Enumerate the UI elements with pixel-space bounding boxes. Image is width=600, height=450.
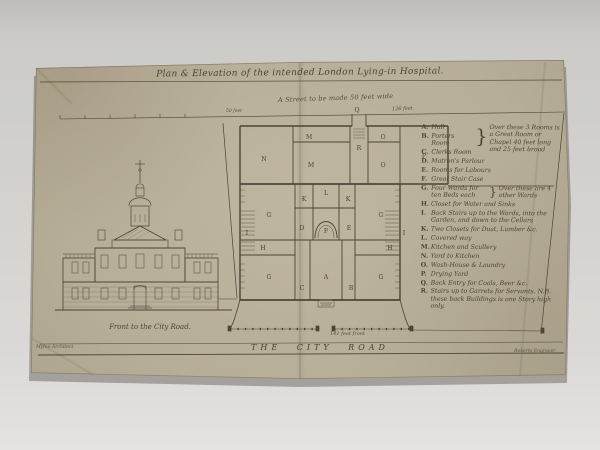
svg-text:I: I [403, 230, 406, 237]
ward-ticks [240, 190, 400, 288]
legend-item: NYard to Kitchen [421, 252, 563, 260]
legend-item: QBack Entry for Coals, Beer &c. [421, 279, 563, 287]
svg-text:M: M [306, 134, 313, 141]
svg-text:D: D [300, 225, 305, 232]
svg-text:K: K [302, 196, 307, 203]
svg-text:O: O [380, 134, 385, 141]
legend-item: AHall [421, 124, 473, 132]
svg-text:E: E [347, 225, 352, 232]
elevation-windows [72, 254, 211, 299]
legend-item: RStairs up to Garrets for Servants. N.B.… [421, 288, 563, 311]
legend-group-g: GFour Wards for ten Beds each } Over the… [421, 184, 563, 199]
legend-brace: } [475, 124, 487, 157]
legend-item: CClerks Room [421, 149, 473, 157]
legend-group-note: Over these 3 Rooms is a Great Room or Ch… [489, 124, 563, 157]
legend-group-abc: AHall BPorters Room CClerks Room } Over … [421, 124, 563, 157]
legend-item: DMatron's Parlour [421, 158, 563, 166]
rear-stair-hatch [353, 129, 365, 138]
legend-item: IBack Stairs up to the Wards, into the G… [421, 210, 563, 225]
svg-text:C: C [300, 285, 305, 292]
elevation-caption: Front to the City Road. [70, 323, 230, 331]
legend-item: BPorters Room [421, 133, 473, 148]
svg-text:H: H [387, 245, 393, 252]
svg-text:N: N [261, 156, 267, 163]
legend-item: KTwo Closets for Dust, Lumber &c. [421, 226, 563, 234]
legend-item: MKitchen and Scullery [421, 244, 563, 252]
svg-text:L: L [324, 190, 328, 197]
legend-brace: } [489, 185, 497, 200]
legend-group-note: Over these are 4 other Wards [499, 185, 563, 200]
svg-text:G: G [379, 274, 384, 281]
svg-text:Q: Q [354, 107, 359, 114]
plan-room-letters: N M M Q R O O P G K L K G D F E H [246, 107, 426, 292]
legend-item: HCloset for Water and Sinks [421, 201, 563, 209]
svg-text:A: A [323, 274, 329, 281]
svg-text:M: M [308, 162, 315, 169]
svg-text:G: G [267, 274, 272, 281]
plan-key-legend: AHall BPorters Room CClerks Room } Over … [421, 124, 564, 311]
engraver-credit: Roberts Engraver [514, 349, 555, 354]
scale-bar [60, 112, 565, 119]
elevation-drawing [55, 160, 237, 310]
cupola [129, 160, 151, 226]
svg-text:K: K [346, 196, 351, 203]
photo-background: N M M Q R O O P G K L K G D F E H [0, 0, 600, 450]
svg-text:R: R [357, 145, 362, 152]
scale-bar-label: 50 feet [226, 109, 242, 114]
legend-item: FGreat Stair Case [421, 175, 563, 183]
architect-credit: Mylne Architect [36, 345, 73, 350]
legend-item: LCovered way [421, 235, 563, 243]
svg-text:G: G [267, 212, 272, 219]
city-road-label: THE CITY ROAD [170, 343, 470, 352]
svg-text:H: H [260, 245, 266, 252]
front-dimension: 141 feet front [330, 331, 365, 337]
elevation-door [126, 286, 154, 311]
svg-text:B: B [349, 285, 354, 292]
legend-item: OWash-House & Laundry [421, 261, 563, 269]
legend-item: PDrying Yard [421, 270, 563, 278]
street-dimension: 126 feet [392, 106, 413, 113]
svg-text:G: G [379, 212, 384, 219]
svg-text:O: O [380, 162, 385, 169]
balustrade-ticks [66, 254, 212, 258]
svg-text:F: F [324, 228, 329, 235]
legend-item: ERooms for Labours [421, 167, 563, 175]
front-steps [318, 300, 334, 307]
